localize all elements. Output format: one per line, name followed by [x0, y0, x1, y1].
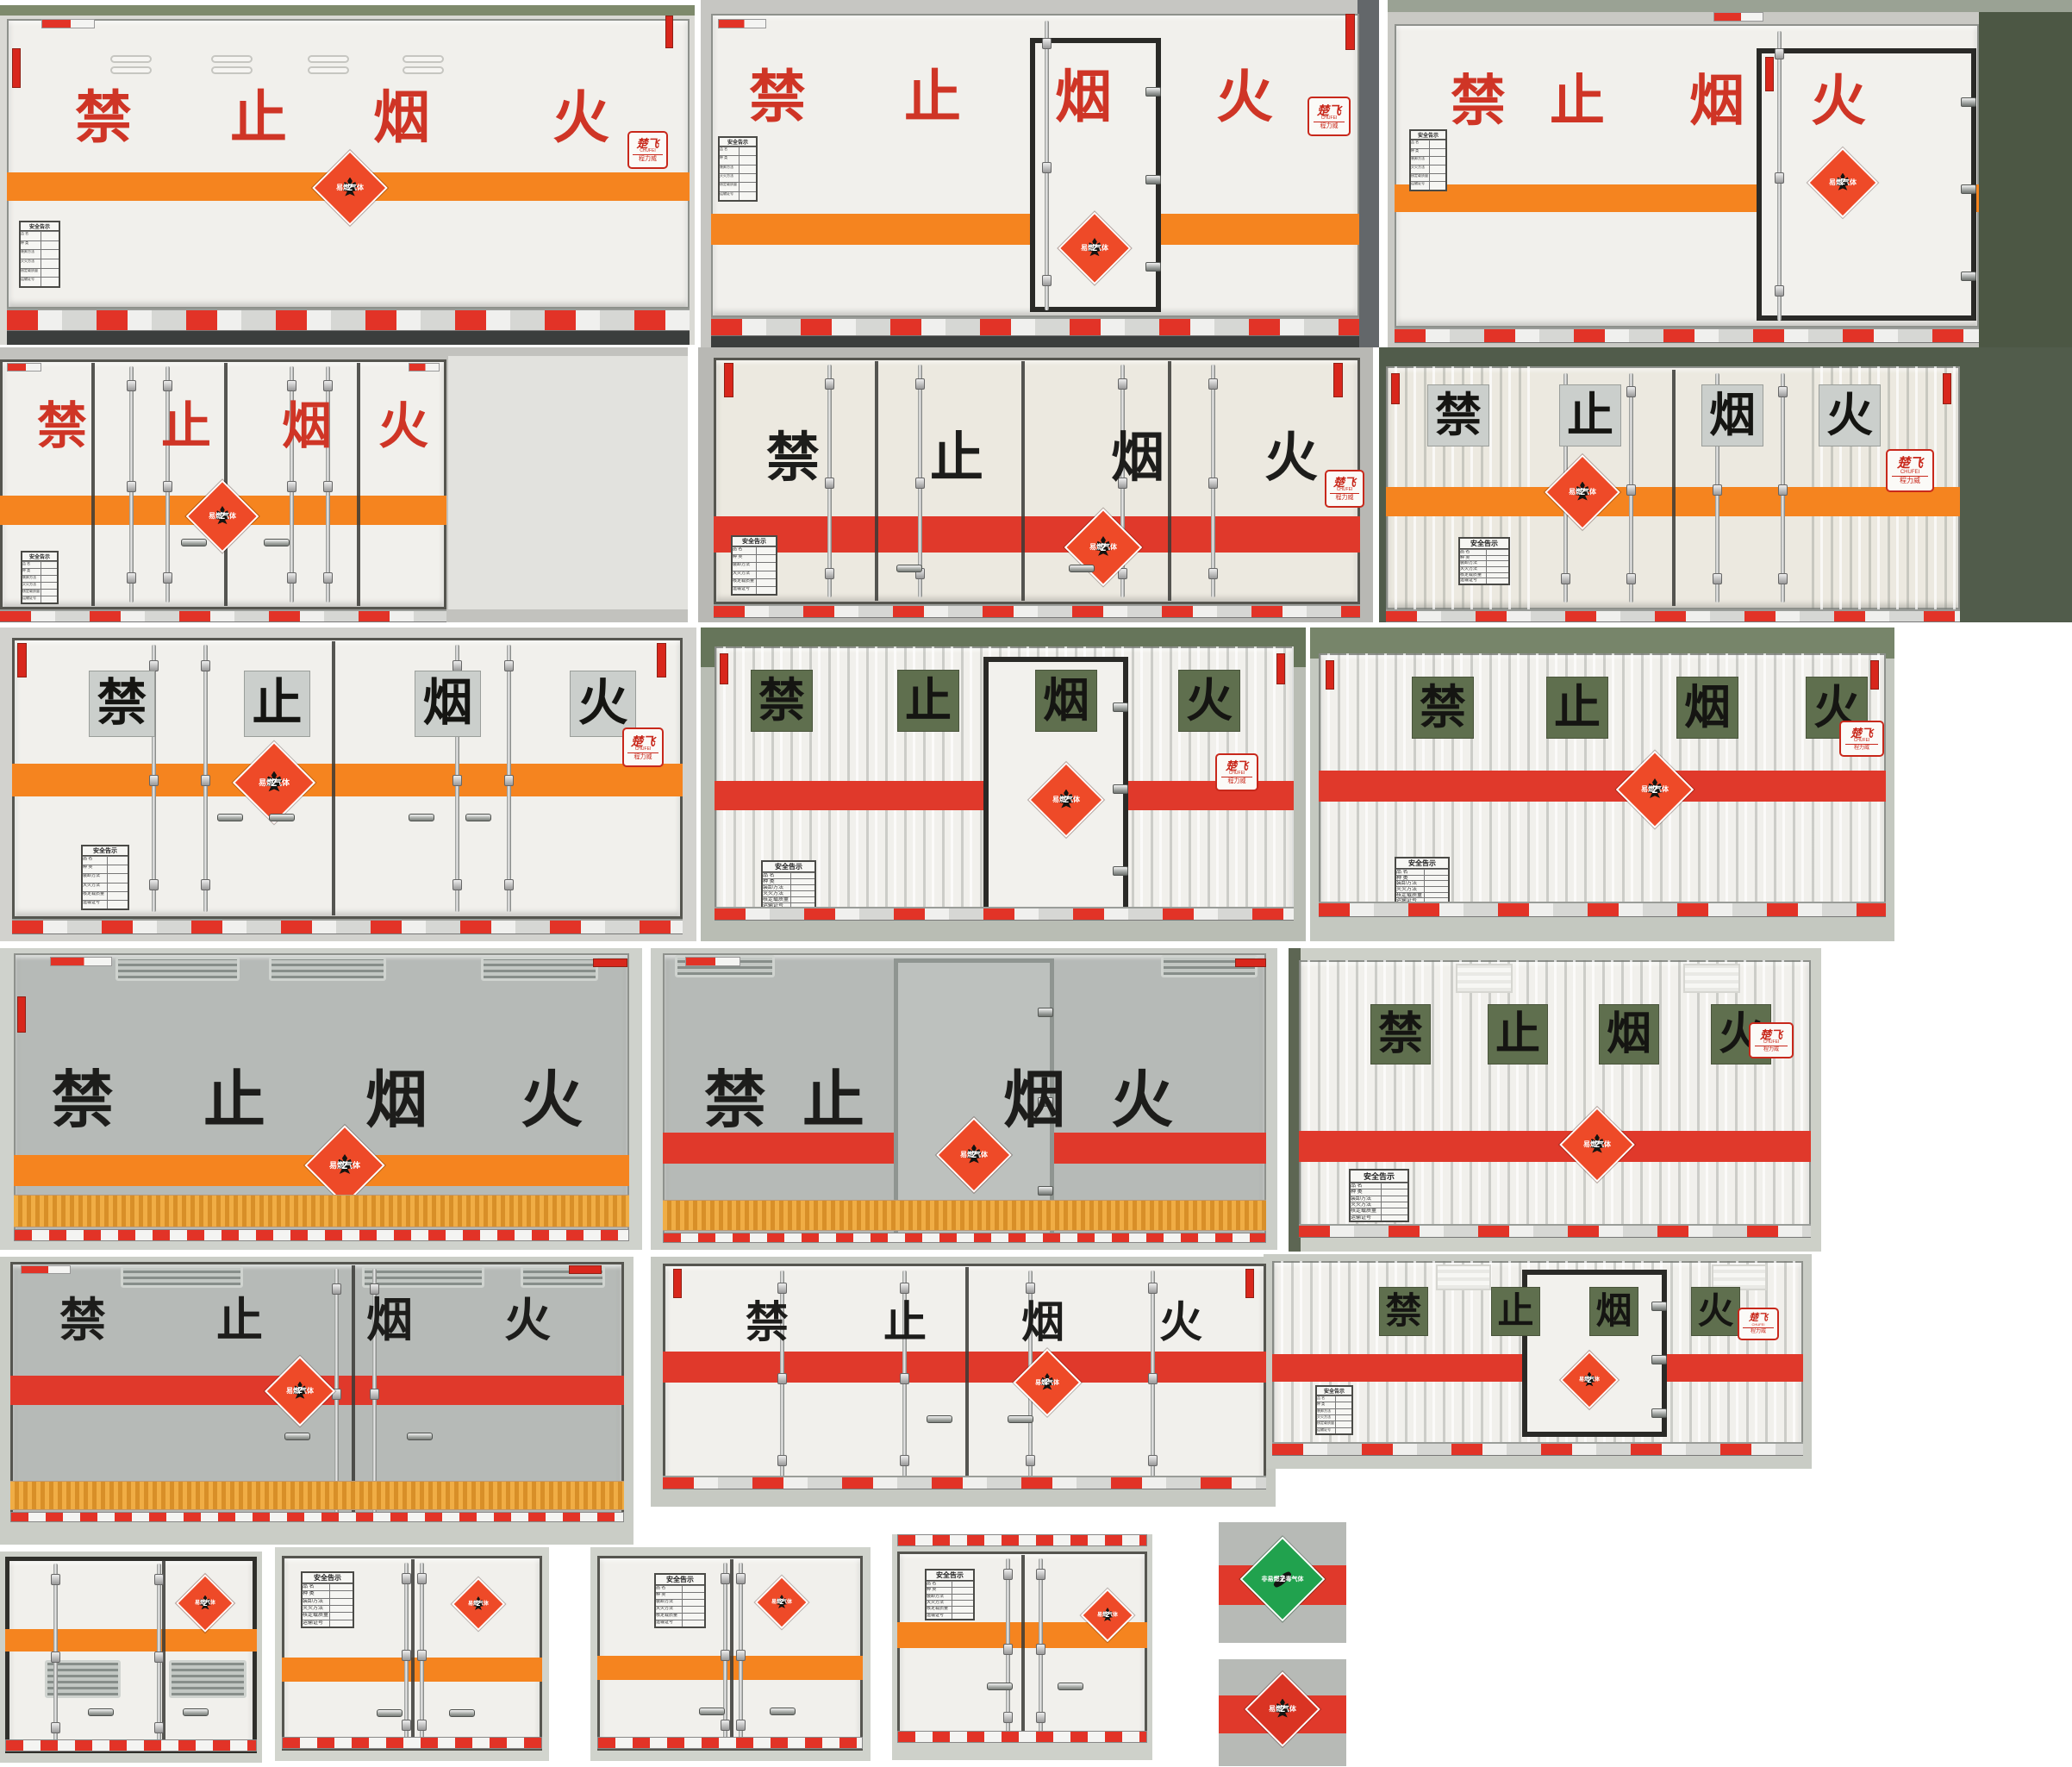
safety-plate-row: 种 类 [1460, 555, 1508, 561]
brand-logo-main: 楚飞 [1897, 457, 1923, 470]
safety-plate-row-value [41, 576, 57, 582]
lock-rod-bracket [1775, 172, 1784, 184]
lock-rod-bracket [900, 1373, 909, 1384]
no-fire-character: 禁 [1435, 391, 1482, 440]
hazard-diamond-content: 易燃气体2 [1569, 1359, 1610, 1401]
safety-plate-row-label: 装卸方法 [303, 1599, 330, 1605]
corner-reflector-icon [1235, 958, 1266, 967]
brand-logo-sub: CHUFEI [1337, 488, 1353, 492]
safety-plate-row: 品 名 [1351, 1183, 1407, 1189]
safety-plate-row-value [1487, 578, 1508, 584]
safety-plate-row-label: 品 名 [22, 562, 41, 568]
lock-rod-bracket [721, 1573, 730, 1584]
char-placard: 火 [1179, 671, 1239, 731]
brand-logo-divider [1743, 1327, 1773, 1328]
safety-plate-row-label: 灭火方法 [22, 583, 41, 589]
safety-plate-row-label: 运输证号 [22, 596, 41, 603]
corner-reflector-icon [593, 958, 627, 967]
no-fire-character: 止 [904, 67, 961, 130]
char-placard: 禁 [90, 671, 154, 736]
safety-plate-row: 品 名 [83, 856, 128, 865]
lock-rod-bracket [1778, 386, 1788, 397]
safety-plate-title: 安全告示 [303, 1573, 353, 1583]
safety-plate-row: 品 名 [1396, 869, 1448, 875]
char-placard: 火 [1692, 1288, 1739, 1335]
diamond-class-number: 2 [780, 1599, 783, 1606]
reflective-bumper [1299, 1224, 1811, 1238]
lock-rod-bracket [154, 1722, 164, 1733]
diamond-class-number: 2 [1064, 796, 1069, 805]
no-fire-character: 止 [930, 430, 983, 489]
brand-logo-bottom: 程力威 [1228, 778, 1246, 784]
safety-plate-row-label: 运输证号 [720, 192, 740, 200]
lock-rod-bracket [402, 1650, 411, 1661]
hazard-diamond: 易燃气体2 [1081, 1589, 1134, 1642]
safety-plate-row-value [41, 250, 59, 259]
safety-plate-row-value [740, 156, 756, 164]
lock-rod-bracket [51, 1651, 60, 1663]
safety-plate-title: 安全告示 [1411, 131, 1445, 140]
safety-plate-row-label: 运输证号 [1411, 182, 1430, 190]
no-fire-character: 烟 [366, 1296, 413, 1347]
safety-plate-row: 核定载质量 [21, 268, 59, 278]
safety-plate-row: 核定载质量 [22, 589, 57, 596]
brand-logo-divider [1221, 777, 1253, 777]
safety-plate-row: 品 名 [1411, 140, 1445, 148]
safety-notice-plate: 安全告示品 名种 类装卸方法灭火方法核定载质量运输证号 [731, 535, 777, 596]
diamond-class-number: 2 [1045, 1378, 1050, 1387]
safety-plate-row-value [330, 1591, 353, 1597]
diamond-class-number: 2 [1280, 1705, 1285, 1714]
door-seam [875, 361, 878, 601]
lock-rod-bracket [736, 1650, 746, 1661]
no-fire-character: 止 [203, 1069, 265, 1137]
red-white-reflective-strip [10, 1512, 624, 1522]
lock-rod-bracket [417, 1573, 427, 1584]
hazard-diamond-content: 易燃气体2 [245, 753, 303, 812]
lock-rod-bracket [825, 478, 834, 489]
door-seam [332, 641, 335, 915]
brand-logo-bottom: 程力威 [1763, 1047, 1779, 1052]
safety-plate-row: 品 名 [720, 147, 756, 155]
no-fire-character: 火 [552, 88, 609, 151]
safety-plate-row: 核定载质量 [1411, 173, 1445, 182]
corner-reflector-icon [1345, 14, 1355, 50]
brand-logo-divider [627, 752, 658, 753]
lock-rod-bracket [127, 572, 136, 584]
photo-r5c3-container-door: 禁止烟火易燃气体2楚飞CHUFEI程力威安全告示品 名种 类装卸方法灭火方法核定… [1264, 1254, 1812, 1469]
safety-plate-row-label: 品 名 [83, 857, 108, 865]
safety-plate-row: 品 名 [1317, 1395, 1351, 1402]
lock-rod-bracket [1118, 378, 1127, 390]
no-fire-character: 火 [521, 1069, 583, 1137]
brand-logo-sub: CHUFEI [1763, 1040, 1780, 1045]
no-fire-character: 禁 [749, 67, 806, 130]
lock-rod-bracket [1626, 573, 1636, 584]
safety-plate-row: 灭火方法 [1396, 886, 1448, 892]
brand-logo-divider [1330, 493, 1359, 494]
louver-vent-icon [115, 957, 240, 981]
reflective-bumper [1386, 609, 1960, 622]
photo-collage: 禁止烟火易燃气体2楚飞CHUFEI程力威安全告示品 名种 类装卸方法灭火方法核定… [0, 0, 2072, 1767]
corner-reflector-icon [17, 996, 26, 1033]
safety-plate-row: 运输证号 [1460, 578, 1508, 584]
photo-r2c1-rear-doors: 禁止烟火易燃气体2安全告示品 名种 类装卸方法灭火方法核定载质量运输证号 [0, 347, 688, 622]
safety-plate-row-value [108, 857, 128, 865]
diamond-class-number: 2 [1595, 1140, 1600, 1150]
safety-plate-title: 安全告示 [1396, 859, 1448, 869]
photo-r1c2-rear-door: 禁止烟火易燃气体2楚飞CHUFEI程力威安全告示品 名种 类装卸方法灭火方法核定… [701, 0, 1379, 347]
door-seam [91, 363, 95, 606]
door-seam [411, 1559, 415, 1747]
safety-plate-row-label: 灭火方法 [656, 1607, 683, 1613]
safety-plate-row-value [740, 192, 756, 200]
char-placard: 烟 [1677, 677, 1738, 738]
char-placard: 禁 [1380, 1288, 1427, 1335]
safety-plate-row: 装卸方法 [720, 165, 756, 173]
brand-logo: 楚飞CHUFEI程力威 [1886, 449, 1934, 492]
red-white-reflective-strip [897, 1731, 1147, 1743]
safety-notice-plate: 安全告示品 名种 类装卸方法灭火方法核定载质量运输证号 [654, 1573, 706, 1628]
door-seam [357, 363, 360, 606]
corner-reflector-icon [409, 363, 440, 372]
brand-logo-bottom: 程力威 [1336, 495, 1354, 501]
background-area [1979, 0, 2072, 347]
brand-logo-bottom: 程力威 [639, 156, 657, 162]
red-white-reflective-strip [282, 1737, 542, 1749]
warning-stripe [1319, 771, 1886, 802]
lock-rod-bracket [287, 572, 296, 584]
door-seam [730, 1559, 733, 1747]
no-fire-character: 火 [577, 677, 627, 730]
no-fire-character: 火 [1111, 1069, 1173, 1137]
safety-plate-row: 灭火方法 [720, 173, 756, 182]
lock-rod-bracket [452, 879, 462, 890]
safety-plate-row-value [1430, 182, 1445, 190]
safety-plate-row-label: 运输证号 [927, 1614, 952, 1619]
safety-plate-row: 运输证号 [733, 586, 776, 594]
no-fire-character: 烟 [1709, 391, 1756, 440]
brand-logo: 楚飞CHUFEI程力威 [1307, 97, 1351, 136]
louver-vent-icon [1683, 964, 1740, 993]
diamond-class-number: 2 [297, 1387, 303, 1395]
hazard-diamond: 易燃气体2 [176, 1574, 234, 1633]
door-seam [1021, 361, 1025, 601]
char-placard: 烟 [415, 671, 480, 736]
safety-plate-row-label: 装卸方法 [21, 250, 41, 259]
safety-plate-row: 种 类 [763, 878, 814, 884]
hazard-diamond-content: 易燃气体2 [1023, 1358, 1071, 1407]
safety-plate-row: 种 类 [303, 1590, 353, 1597]
red-white-reflective-strip [597, 1737, 863, 1749]
hazard-diamond-content: 易燃气体2 [1256, 1683, 1309, 1736]
safety-plate-row: 种 类 [927, 1587, 973, 1593]
no-fire-character: 止 [883, 1300, 927, 1347]
hazard-diamond-content: 易燃气体2 [1818, 158, 1868, 208]
hazard-diamond: 易燃气体2 [1013, 1348, 1081, 1416]
lock-rod-bracket [777, 1283, 787, 1294]
safety-plate-row-value [683, 1607, 704, 1613]
safety-plate-row: 装卸方法 [303, 1598, 353, 1605]
photo-r3c1-rear-doors: 禁止烟火易燃气体2楚飞CHUFEI程力威安全告示品 名种 类装卸方法灭火方法核定… [0, 628, 696, 941]
door-hinge-icon [1961, 97, 1976, 107]
safety-plate-title: 安全告示 [21, 222, 59, 231]
corner-reflector-icon [1245, 1269, 1254, 1298]
safety-plate-row: 运输证号 [303, 1620, 353, 1627]
safety-plate-row-value [41, 269, 59, 278]
safety-plate-row-label: 灭火方法 [1411, 165, 1430, 173]
safety-plate-row-label: 种 类 [21, 241, 41, 250]
vent-slot-icon [403, 55, 444, 63]
no-fire-character: 禁 [37, 401, 87, 456]
corner-reflector-icon [569, 1265, 602, 1274]
char-placard: 烟 [1036, 671, 1096, 731]
char-placard: 火 [571, 671, 635, 736]
lock-rod-bracket [149, 660, 159, 671]
red-white-reflective-strip [663, 1233, 1266, 1243]
door-hinge-icon [1961, 272, 1976, 281]
safety-plate-row-value [330, 1599, 353, 1605]
hazard-diamond: 易燃气体2 [1560, 1351, 1619, 1409]
corner-reflector-icon [1391, 373, 1400, 404]
no-fire-character: 烟 [1607, 1011, 1651, 1058]
no-fire-character: 禁 [746, 1300, 789, 1347]
louver-vent-icon [1436, 1264, 1491, 1290]
door-handle-icon [770, 1708, 796, 1715]
safety-plate-row: 运输证号 [1411, 181, 1445, 190]
door-handle-icon [264, 539, 290, 546]
photo-r6c4-rear-doors: 易燃气体2安全告示品 名种 类装卸方法灭火方法核定载质量运输证号 [892, 1534, 1152, 1760]
no-fire-character: 烟 [373, 88, 430, 151]
hazard-diamond-content: 易燃气体2 [763, 1583, 801, 1621]
diamond-class-number: 2 [1580, 488, 1585, 497]
door-handle-icon [927, 1415, 952, 1423]
safety-plate-row: 运输证号 [83, 900, 128, 908]
safety-plate-row-label: 运输证号 [1460, 578, 1487, 584]
safety-plate-row-value [41, 259, 59, 268]
safety-plate-row-label: 灭火方法 [303, 1606, 330, 1612]
reflective-bumper [1272, 1442, 1803, 1456]
safety-plate-row-label: 装卸方法 [1411, 157, 1430, 165]
diamond-class-number: 2 [271, 777, 278, 788]
safety-plate-row: 种 类 [656, 1592, 704, 1599]
safety-plate-row-label: 品 名 [733, 547, 757, 554]
safety-plate-row-label: 装卸方法 [22, 576, 41, 582]
lock-rod-bracket [721, 1720, 730, 1731]
safety-plate-title: 安全告示 [927, 1570, 973, 1581]
diamond-class-number: 2 [1106, 1612, 1109, 1619]
hazard-diamond-content: 易燃气体2 [1627, 762, 1682, 817]
safety-plate-row-label: 核定载质量 [1411, 174, 1430, 182]
lock-rod-bracket [1778, 484, 1788, 496]
hazard-diamond-content: 易燃气体2 [459, 1585, 497, 1623]
lock-rod-bracket [417, 1720, 427, 1731]
safety-plate-row: 品 名 [21, 231, 59, 240]
safety-plate-row-value [740, 147, 756, 155]
lock-rod-bracket [51, 1574, 60, 1585]
door-hinge-icon [1651, 1302, 1667, 1311]
corner-reflector-icon [7, 363, 41, 372]
reflective-bumper [711, 317, 1359, 336]
hazard-diamond-content: 易燃气体2 [1089, 1596, 1126, 1634]
lock-rod-bracket [736, 1720, 746, 1731]
safety-plate-row: 种 类 [733, 554, 776, 562]
lock-rod-bracket [915, 378, 925, 390]
lock-rod-bracket [323, 572, 333, 584]
door-handle-icon [1008, 1415, 1033, 1423]
safety-plate-row-value [330, 1606, 353, 1612]
safety-plate-row: 核定载质量 [733, 578, 776, 586]
brand-logo-bottom: 程力威 [1320, 123, 1339, 129]
door-handle-icon [88, 1708, 114, 1716]
safety-notice-plate: 安全告示品 名种 类装卸方法灭火方法核定载质量运输证号 [19, 221, 60, 288]
no-fire-character: 烟 [1684, 684, 1731, 733]
safety-plate-row: 灭火方法 [1460, 566, 1508, 572]
reflective-bumper [663, 1476, 1266, 1489]
brand-logo: 楚飞CHUFEI程力威 [1215, 753, 1258, 791]
safety-plate-row: 装卸方法 [733, 562, 776, 570]
corner-reflector-icon [1765, 57, 1774, 91]
hazard-diamond: 易燃气体2 [312, 150, 388, 226]
safety-plate-row: 装卸方法 [1317, 1408, 1351, 1414]
lock-rod-bracket [163, 572, 172, 584]
safety-plate-row: 装卸方法 [1396, 880, 1448, 886]
reflective-bumper [714, 604, 1360, 618]
safety-plate-row: 核定载质量 [763, 896, 814, 902]
safety-plate-row: 装卸方法 [83, 873, 128, 882]
safety-plate-row: 灭火方法 [733, 571, 776, 578]
reflective-bumper [7, 309, 690, 331]
no-fire-character: 火 [504, 1296, 551, 1347]
brand-logo-sub: CHUFEI [1900, 470, 1919, 475]
hazard-diamond: 易燃气体2 [936, 1117, 1012, 1193]
safety-plate-row: 核定载质量 [1351, 1208, 1407, 1214]
char-placard: 止 [1488, 1005, 1547, 1064]
safety-plate-row: 核定载质量 [927, 1606, 973, 1612]
hazard-diamond-content: 易燃气体2 [947, 1128, 1001, 1182]
warning-stripe [714, 516, 1360, 553]
lock-rod-bracket [1003, 1644, 1013, 1655]
safety-plate-row: 运输证号 [1317, 1427, 1351, 1433]
door-seam [965, 1267, 969, 1486]
lock-rod-bracket [504, 775, 514, 786]
lock-rod-bracket [777, 1455, 787, 1466]
safety-plate-row-label: 品 名 [720, 147, 740, 155]
louver-vent-icon [1456, 964, 1513, 993]
reflective-bumper [12, 919, 683, 934]
no-fire-character: 止 [1554, 684, 1601, 733]
brand-logo-divider [1755, 1046, 1788, 1046]
safety-plate-row-value [1430, 140, 1445, 148]
brand-logo-bottom: 程力威 [634, 754, 652, 760]
safety-plate-row-label: 品 名 [303, 1584, 330, 1590]
no-fire-character: 烟 [1111, 430, 1164, 489]
safety-plate-row: 装卸方法 [1411, 156, 1445, 165]
louver-vent-icon [481, 957, 598, 981]
lock-rod-bracket [163, 481, 172, 492]
safety-plate-row: 运输证号 [720, 191, 756, 200]
safety-plate-title: 安全告示 [763, 862, 814, 872]
safety-notice-plate: 安全告示品 名种 类装卸方法灭火方法核定载质量运输证号 [761, 860, 816, 910]
yellow-reflective-band [10, 1481, 624, 1510]
safety-plate-row: 运输证号 [22, 596, 57, 603]
safety-plate-row-value [41, 596, 57, 603]
safety-plate-row-value [740, 174, 756, 182]
safety-plate-row-label: 品 名 [656, 1586, 683, 1592]
safety-plate-row-value [108, 883, 128, 891]
brand-logo-divider [1845, 744, 1878, 745]
vent-slot-icon [110, 66, 152, 74]
lock-rod-bracket [287, 380, 296, 391]
safety-plate-row-value [108, 874, 128, 882]
safety-plate-row: 种 类 [1396, 875, 1448, 881]
diamond-class-number: 2 [220, 512, 225, 521]
lock-rod-bracket [452, 660, 462, 671]
safety-plate-row: 运输证号 [21, 277, 59, 286]
safety-notice-plate: 安全告示品 名种 类装卸方法灭火方法核定载质量运输证号 [1395, 857, 1450, 905]
no-fire-character: 止 [905, 677, 952, 726]
corner-reflector-icon [718, 19, 766, 28]
louver-vent-icon [269, 957, 386, 981]
lock-rod-bracket [915, 478, 925, 489]
diamond-class-number: 2 [971, 1151, 977, 1160]
safety-plate-row-label: 装卸方法 [656, 1600, 683, 1606]
no-fire-character: 火 [378, 401, 428, 456]
safety-plate-row-label: 灭火方法 [21, 259, 41, 268]
door-handle-icon [284, 1433, 310, 1440]
lock-rod-bracket [201, 775, 210, 786]
lock-rod-bracket [1148, 1283, 1158, 1294]
lock-rod-bracket [370, 1283, 379, 1295]
lock-rod-bracket [149, 775, 159, 786]
safety-plate-row: 运输证号 [1351, 1214, 1407, 1221]
safety-plate-title: 安全告示 [83, 846, 128, 856]
louver-vent-icon [362, 1265, 484, 1288]
safety-plate-row: 核定载质量 [656, 1613, 704, 1620]
corner-reflector-icon [1713, 12, 1763, 22]
lock-rod-bracket [402, 1573, 411, 1584]
safety-plate-row-label: 核定载质量 [656, 1614, 683, 1620]
no-fire-character: 火 [1186, 677, 1233, 726]
safety-plate-row-label: 品 名 [1411, 140, 1430, 148]
safety-plate-row-value [757, 563, 777, 570]
lock-rod-bracket [402, 1720, 411, 1731]
no-fire-character: 火 [1811, 72, 1866, 133]
lock-rod-bracket [1148, 1455, 1158, 1466]
reflective-bumper [1319, 902, 1886, 917]
hazard-diamond: 易燃气体2 [1807, 147, 1878, 218]
diamond-class-number: 2 [1101, 542, 1107, 553]
corner-reflector-icon [685, 957, 740, 966]
yellow-reflective-band [14, 1195, 629, 1227]
hazard-diamond: 易燃气体2 [452, 1577, 505, 1631]
corner-reflector-icon [724, 363, 733, 397]
corner-reflector-icon [50, 957, 112, 966]
safety-plate-row: 灭火方法 [763, 890, 814, 896]
no-fire-character: 禁 [1420, 684, 1466, 733]
photo-r2c3-container-rear: 禁止烟火易燃气体2楚飞CHUFEI程力威安全告示品 名种 类装卸方法灭火方法核定… [1379, 347, 2072, 622]
safety-plate-row-label: 种 类 [83, 865, 108, 873]
background-area [448, 356, 688, 609]
corner-reflector-icon [1326, 660, 1334, 690]
no-fire-character: 烟 [282, 401, 332, 456]
safety-plate-row: 种 类 [21, 240, 59, 250]
photo-r2c2-rear-doors: 禁止烟火易燃气体2楚飞CHUFEI程力威安全告示品 名种 类装卸方法灭火方法核定… [698, 347, 1373, 622]
safety-plate-row: 装卸方法 [1460, 560, 1508, 566]
hazard-diamond-content: 易燃气体2 [316, 1137, 373, 1194]
diamond-class-number: 2 [1587, 1377, 1591, 1384]
safety-plate-row-label: 运输证号 [21, 278, 41, 286]
